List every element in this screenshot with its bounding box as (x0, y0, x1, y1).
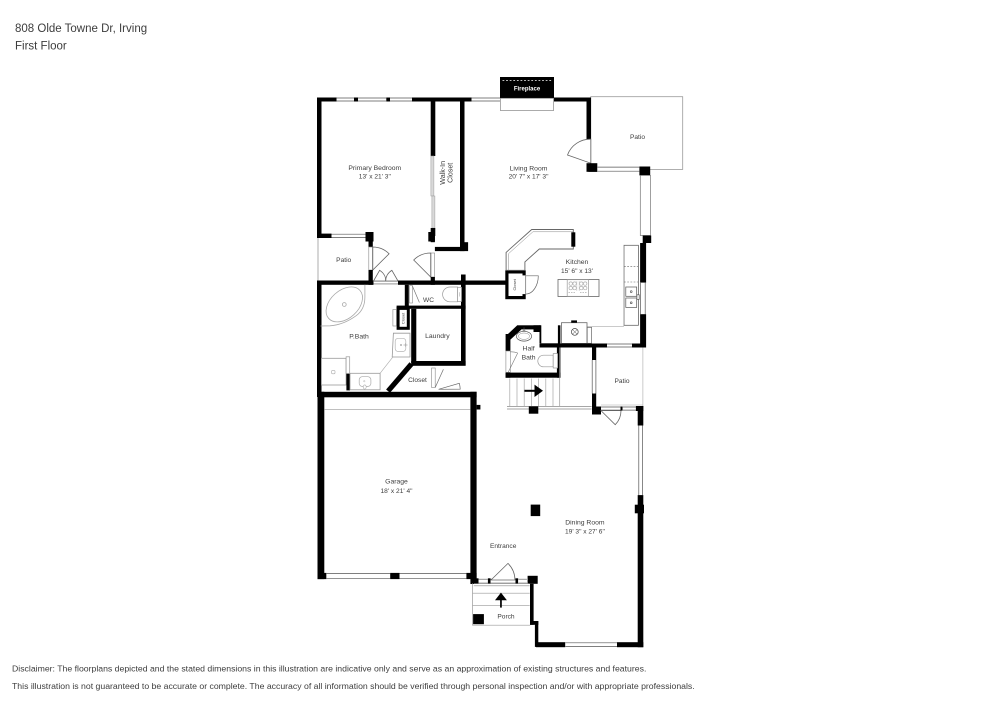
svg-text:WC: WC (423, 297, 434, 304)
svg-text:First Floor: First Floor (15, 41, 67, 53)
svg-text:20' 7" x 17' 3": 20' 7" x 17' 3" (509, 173, 549, 180)
svg-text:Closet: Closet (408, 377, 427, 384)
svg-text:808 Olde Towne Dr, Irving: 808 Olde Towne Dr, Irving (15, 23, 147, 35)
svg-text:P.Bath: P.Bath (349, 333, 369, 340)
svg-text:Closet: Closet (400, 312, 405, 324)
svg-text:Closet: Closet (512, 278, 517, 290)
svg-text:15' 6" x 13': 15' 6" x 13' (561, 268, 593, 275)
svg-text:Closet: Closet (447, 163, 455, 183)
svg-text:Living Room: Living Room (510, 165, 548, 172)
svg-text:Half: Half (523, 346, 535, 353)
svg-text:This illustration is not guara: This illustration is not guaranteed to b… (12, 681, 695, 691)
svg-text:Patio: Patio (336, 257, 351, 264)
svg-text:19' 3" x 27' 6": 19' 3" x 27' 6" (565, 529, 605, 536)
svg-text:Patio: Patio (614, 378, 629, 385)
svg-text:Disclaimer: The floorplans dep: Disclaimer: The floorplans depicted and … (12, 664, 646, 674)
svg-text:Walk-In: Walk-In (439, 161, 447, 185)
svg-text:Porch: Porch (497, 614, 515, 621)
svg-text:Dining Room: Dining Room (565, 519, 605, 526)
svg-text:Bath: Bath (522, 355, 536, 362)
svg-text:Patio: Patio (630, 134, 645, 141)
svg-text:Garage: Garage (385, 478, 408, 485)
svg-text:Laundry: Laundry (425, 333, 450, 340)
svg-text:13' x 21' 3": 13' x 21' 3" (359, 173, 392, 180)
svg-text:Fireplace: Fireplace (514, 87, 541, 93)
svg-text:Entrance: Entrance (490, 543, 517, 550)
svg-text:Primary Bedroom: Primary Bedroom (348, 165, 401, 172)
svg-text:Kitchen: Kitchen (566, 259, 589, 266)
svg-text:18' x 21' 4": 18' x 21' 4" (381, 488, 414, 495)
